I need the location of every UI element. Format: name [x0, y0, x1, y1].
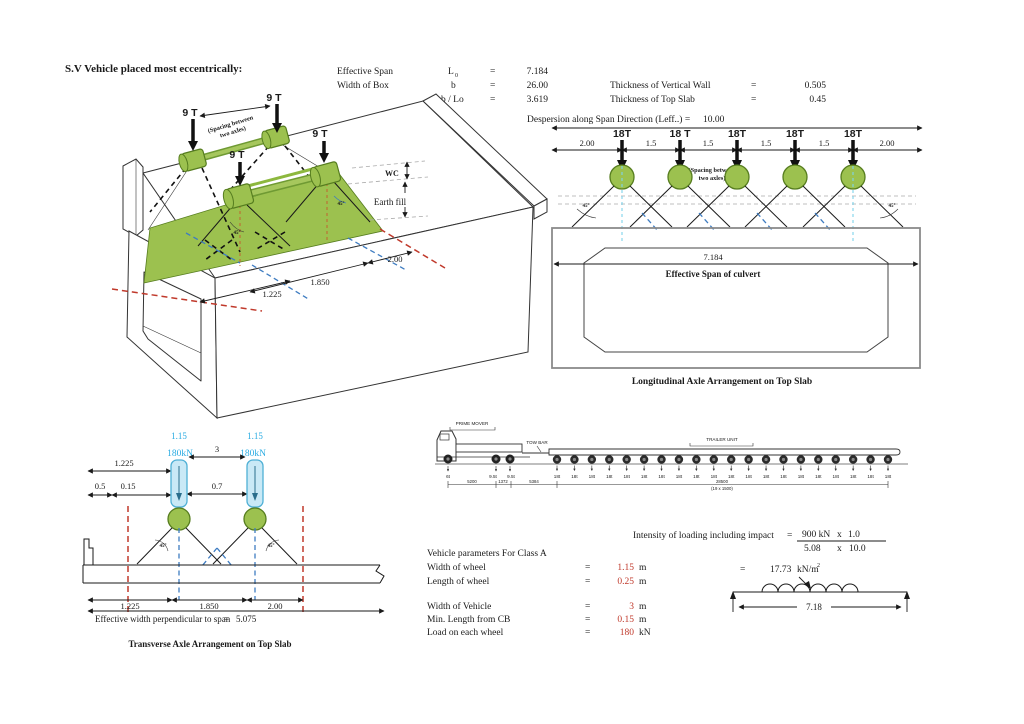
classa-value: 0.15: [617, 615, 634, 625]
truck-trailer-axle: 18t: [710, 455, 718, 479]
trans-effective-width: Effective width perpendicular to span = …: [95, 614, 257, 624]
parameters-table: Effective Span L 0 = 7.184 Width of Box …: [337, 66, 826, 105]
truck-trailer-axle: 18t: [832, 455, 840, 479]
truck-trailer-axle: 18t: [884, 455, 892, 479]
classa-label: Width of wheel: [427, 562, 486, 573]
intensity-block: Intensity of loading including impact = …: [633, 530, 910, 612]
classa-label: Load on each wheel: [427, 628, 504, 638]
long-load-label: 18T: [613, 128, 632, 140]
trans-dim-015: 0.15: [121, 481, 136, 491]
calculation-sheet: S.V Vehicle placed most eccentrically: E…: [0, 0, 1024, 724]
iso-load-label: 9 T: [266, 92, 282, 104]
truck-prime-mover-label: PRIME MOVER: [456, 421, 489, 426]
param-value: 0.505: [805, 81, 827, 91]
param-symbol: L: [448, 67, 454, 77]
iso-load-label: 9 T: [312, 128, 328, 140]
intensity-result-unit: kN/m: [797, 565, 819, 575]
long-wheels: [610, 165, 865, 189]
classa-label: Length of wheel: [427, 576, 490, 587]
trans-dim-label: 1.225: [120, 601, 139, 611]
intensity-numerator: 900 kN: [802, 530, 830, 540]
long-dim-label: 1.5: [819, 138, 830, 148]
truck-trailer-dim: 28500: [716, 479, 729, 484]
param-label: Thickness of Top Slab: [610, 94, 695, 105]
truck-trailer-axle: 18t: [692, 455, 700, 479]
trans-curb-profile: [84, 539, 93, 565]
truck-tractor: [437, 431, 549, 464]
trans-wheel-width-right: 1.15: [247, 431, 263, 441]
param-symbol-sub: 0: [455, 73, 458, 79]
iso-dim-1225: 1.225: [262, 289, 281, 299]
param-eq: =: [490, 95, 495, 105]
long-span-value: 7.184: [703, 252, 723, 262]
trans-eff-width-label: Effective width perpendicular to span: [95, 614, 231, 624]
trans-dim-label: 2.00: [268, 601, 283, 611]
intensity-numerator-2: 1.0: [848, 530, 860, 540]
intensity-eq: =: [787, 531, 792, 541]
trans-dim-label: 1.850: [199, 601, 218, 611]
truck-axle-load: 9.5t: [507, 474, 515, 479]
class-a-table: Vehicle parameters For Class A Width of …: [427, 549, 651, 638]
truck-trailer-axle: 18t: [622, 455, 630, 479]
truck-trailer-axle: 18t: [866, 455, 874, 479]
truck-dims: 5200 1372 5384 28500 (19 x 1500): [448, 479, 888, 491]
truck-axle-load: 18t: [798, 474, 805, 479]
truck-trailer-bed: [549, 449, 900, 455]
intensity-denominator-x: x: [837, 544, 842, 554]
intensity-denominator: 5.08: [804, 544, 821, 554]
iso-wc-label: WC: [385, 169, 399, 178]
long-load-label: 18T: [844, 128, 863, 140]
truck-trailer-axle: 18t: [640, 455, 648, 479]
truck-tractor-axle-loads: 6t 9.5t 9.5t: [446, 466, 515, 479]
long-angle-labels: 45° 45°: [577, 204, 898, 218]
truck-axle-load: 18t: [658, 474, 665, 479]
iso-dim-200: 2.00: [388, 254, 403, 264]
param-symbol: b: [451, 81, 456, 91]
trans-wheel-width-left: 1.15: [171, 431, 187, 441]
trans-load-right: 180kN: [240, 449, 266, 459]
long-angle-right: 45°: [889, 204, 896, 209]
long-load-label: 18T: [786, 128, 805, 140]
intensity-result-value: 17.73: [770, 565, 792, 575]
truck-trailer-axle: 18t: [657, 455, 665, 479]
truck-trailer-axle: 18t: [675, 455, 683, 479]
param-label: Effective Span: [337, 66, 393, 77]
long-slab-outline: [552, 228, 920, 368]
long-load-label: 18T: [728, 128, 747, 140]
truck-trailer-axles: 18t18t18t18t18t18t18t18t18t18t18t18t18t1…: [553, 455, 892, 479]
truck-trailer-unit-label: TRAILER UNIT: [706, 437, 738, 442]
classa-title: Vehicle parameters For Class A: [427, 549, 547, 559]
classa-eq: =: [585, 628, 590, 638]
truck-trailer-axle: 18t: [605, 455, 613, 479]
classa-label: Min. Length from CB: [427, 614, 510, 625]
truck-trailer-axle: 18t: [797, 455, 805, 479]
truck-axle-load: 18t: [885, 474, 892, 479]
long-dispersion-value: 10.00: [703, 115, 725, 125]
intensity-span-dim: 7.18: [806, 602, 822, 612]
truck-trailer-axle: 18t: [553, 455, 561, 479]
trans-dim-gap: 3: [215, 444, 219, 454]
trans-bottom-dims: 1.225 1.850 2.00: [88, 600, 384, 611]
param-value: 0.45: [809, 95, 826, 105]
iso-left-parapet: [123, 159, 143, 236]
iso-load-label: 9 T: [182, 107, 198, 119]
longitudinal-diagram: Despersion along Span Direction (Leff..)…: [527, 114, 922, 387]
long-load-label: 18 T: [669, 128, 691, 140]
trans-dim-1225-top: 1.225: [114, 458, 133, 468]
truck-dim-label: 5384: [529, 479, 539, 484]
classa-unit: m: [639, 577, 647, 587]
truck-axle-load: 18t: [554, 474, 561, 479]
truck-axle-load: 18t: [571, 474, 578, 479]
intensity-label: Intensity of loading including impact: [633, 530, 774, 541]
long-dim-label: 1.5: [646, 138, 657, 148]
truck-trailer-axle: 18t: [727, 455, 735, 479]
trans-eff-width-value: 5.075: [236, 614, 257, 624]
classa-value: 3: [629, 602, 634, 612]
long-dim-label: 1.5: [703, 138, 714, 148]
intensity-denominator-2: 10.0: [849, 544, 866, 554]
trans-wheel: [244, 508, 266, 530]
intensity-result-eq: =: [740, 565, 745, 575]
param-value: 3.619: [527, 95, 549, 105]
iso-angle-label: 45°: [234, 231, 241, 236]
classa-unit: m: [639, 615, 647, 625]
truck-axle-load: 18t: [780, 474, 787, 479]
truck-axle-load: 18t: [676, 474, 683, 479]
trans-wheel: [168, 508, 190, 530]
trans-dim-05: 0.5: [95, 481, 106, 491]
truck-trailer-axle: 18t: [588, 455, 596, 479]
classa-eq: =: [585, 602, 590, 612]
trans-load-left: 180kN: [167, 449, 193, 459]
long-span-label: Effective Span of culvert: [666, 269, 761, 279]
truck-axle-load: 18t: [693, 474, 700, 479]
truck-axle-load: 18t: [606, 474, 613, 479]
long-angle-left: 45°: [583, 204, 590, 209]
truck-axle-load: 18t: [815, 474, 822, 479]
classa-eq: =: [585, 563, 590, 573]
iso-dim-1850: 1.850: [310, 277, 329, 287]
trans-dim-07: 0.7: [212, 481, 223, 491]
iso-load-label: 9 T: [229, 149, 245, 161]
truck-trailer-axle: 18t: [744, 455, 752, 479]
classa-unit: kN: [639, 628, 651, 638]
truck-trailer-axle: 18t: [779, 455, 787, 479]
truck-axle-load: 18t: [641, 474, 648, 479]
intensity-numerator-x: x: [837, 530, 842, 540]
trans-eff-width-eq: =: [224, 614, 229, 624]
truck-axle-load: 18t: [850, 474, 857, 479]
truck-axle-load: 18t: [623, 474, 630, 479]
trans-angle-right: 45°: [268, 544, 275, 549]
truck-diagram: 18t18t18t18t18t18t18t18t18t18t18t18t18t1…: [435, 421, 908, 491]
intensity-load-diagram: 7.18: [730, 577, 910, 612]
truck-trailer-axle: 18t: [570, 455, 578, 479]
classa-eq: =: [585, 577, 590, 587]
intensity-result-sup: 2: [817, 563, 820, 569]
trans-angle-labels: 45° 45°: [155, 540, 279, 551]
classa-unit: m: [639, 602, 647, 612]
long-spacing-note-line2: two axles): [699, 175, 726, 182]
truck-trailer-axle: 18t: [814, 455, 822, 479]
param-value: 7.184: [527, 67, 549, 77]
classa-value: 1.15: [617, 563, 634, 573]
classa-label: Width of Vehicle: [427, 601, 491, 612]
truck-axle-load: 18t: [745, 474, 752, 479]
long-dim-label: 2.00: [580, 138, 595, 148]
trans-angle-left: 45°: [160, 544, 167, 549]
param-eq: =: [751, 95, 756, 105]
truck-axle-load: 18t: [763, 474, 770, 479]
truck-axle-load: 6t: [446, 474, 451, 479]
param-eq: =: [490, 81, 495, 91]
param-eq: =: [751, 81, 756, 91]
trans-caption: Transverse Axle Arrangement on Top Slab: [128, 639, 291, 649]
param-eq: =: [490, 67, 495, 77]
param-label: Thickness of Vertical Wall: [610, 80, 711, 91]
truck-tow-bar-label: TOW BAR: [526, 440, 548, 445]
classa-eq: =: [585, 615, 590, 625]
classa-value: 0.25: [617, 577, 634, 587]
iso-culvert-diagram: 9 T 9 T 9 T 9 T (Spacing between two axl…: [112, 92, 547, 418]
truck-axle-load: 9.5t: [489, 474, 497, 479]
classa-unit: m: [639, 563, 647, 573]
truck-trailer-dim-sub: (19 x 1500): [711, 486, 733, 491]
truck-dim-label: 5200: [467, 479, 477, 484]
classa-value: 180: [620, 628, 635, 638]
truck-trailer-axle: 18t: [762, 455, 770, 479]
iso-earthfill-label: Earth fill: [374, 197, 407, 207]
long-dim-label: 1.5: [761, 138, 772, 148]
page-title: S.V Vehicle placed most eccentrically:: [65, 63, 242, 75]
truck-axle-load: 18t: [867, 474, 874, 479]
long-caption: Longitudinal Axle Arrangement on Top Sla…: [632, 377, 812, 387]
truck-trailer-axle: 18t: [849, 455, 857, 479]
param-label: Width of Box: [337, 80, 389, 91]
iso-spacing-note: (Spacing between two axles): [200, 106, 270, 142]
long-dim-label: 2.00: [880, 138, 895, 148]
long-dispersion-label: Despersion along Span Direction (Leff..)…: [527, 114, 690, 125]
truck-axle-load: 18t: [728, 474, 735, 479]
iso-angle-label: 45°: [338, 202, 345, 207]
param-value: 26.00: [527, 81, 549, 91]
truck-dim-label: 1372: [498, 479, 508, 484]
truck-axle-load: 18t: [833, 474, 840, 479]
truck-axle-load: 18t: [589, 474, 596, 479]
transverse-diagram: 1.15 1.15 180kN 180kN 3 1.225 0.5 0.15 0…: [83, 431, 384, 649]
